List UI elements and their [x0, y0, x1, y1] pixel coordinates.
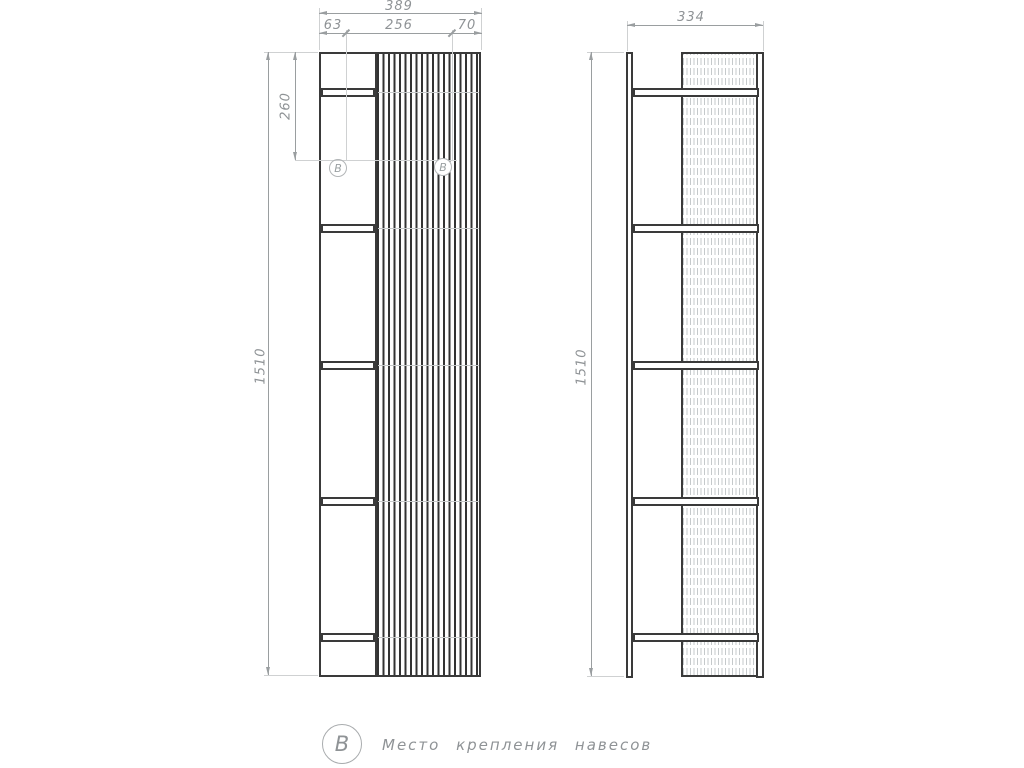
dim-label-side-depth: 334: [677, 10, 705, 25]
dim-label-attachment-offset: 260: [279, 92, 294, 120]
side-shelf: [633, 361, 759, 370]
side-shelf: [633, 224, 759, 233]
hidden-shelf-line: [378, 228, 479, 229]
extension-line: [587, 676, 624, 677]
arrowhead: [293, 52, 297, 60]
side-shelf: [633, 633, 759, 642]
extension-line: [346, 30, 347, 160]
arrowhead: [755, 23, 763, 27]
legend-marker-circle: B: [322, 724, 362, 764]
side-shelf: [633, 497, 759, 506]
arrowhead: [293, 152, 297, 160]
dim-line-side-depth: [627, 25, 763, 26]
arrowhead: [266, 667, 270, 675]
dim-line-side-height: [591, 52, 592, 676]
side-shelf: [633, 88, 759, 97]
front-shelf: [321, 361, 375, 370]
legend-marker-letter: B: [335, 732, 349, 756]
front-shelf: [321, 224, 375, 233]
arrowhead: [627, 23, 635, 27]
front-shelf: [321, 633, 375, 642]
dim-line-attachment-offset: [295, 52, 296, 160]
extension-line: [264, 52, 318, 53]
hidden-shelf-line: [378, 637, 479, 638]
dim-label-front-height: 1510: [254, 347, 269, 384]
hidden-shelf-line: [378, 501, 479, 502]
extension-line: [452, 30, 453, 160]
extension-line: [264, 675, 318, 676]
attachment-level-line: [295, 160, 457, 161]
extension-line: [587, 52, 624, 53]
legend-caption: Место крепления навесов: [382, 736, 652, 754]
extension-line: [763, 21, 764, 51]
attachment-marker-letter: B: [334, 163, 342, 174]
technical-drawing-canvas: 389 63 256 70 1510 260 334 1510 B B B Ме…: [0, 0, 1024, 768]
arrowhead: [589, 668, 593, 676]
attachment-marker-left: B: [329, 159, 347, 177]
arrowhead: [266, 52, 270, 60]
arrowhead: [474, 11, 482, 15]
dim-label-segment-middle: 256: [385, 18, 413, 33]
dim-label-front-total-width: 389: [385, 0, 413, 14]
attachment-marker-letter: B: [439, 162, 447, 173]
dim-label-side-height: 1510: [575, 348, 590, 385]
arrowhead: [589, 52, 593, 60]
front-shelf: [321, 497, 375, 506]
attachment-marker-right: B: [434, 158, 452, 176]
front-shelf: [321, 88, 375, 97]
dim-label-segment-left: 63: [324, 18, 343, 33]
arrowhead: [319, 11, 327, 15]
side-view-back-rail: [626, 52, 633, 678]
hidden-shelf-line: [378, 92, 479, 93]
hidden-shelf-line: [378, 365, 479, 366]
dim-label-segment-right: 70: [458, 18, 477, 33]
